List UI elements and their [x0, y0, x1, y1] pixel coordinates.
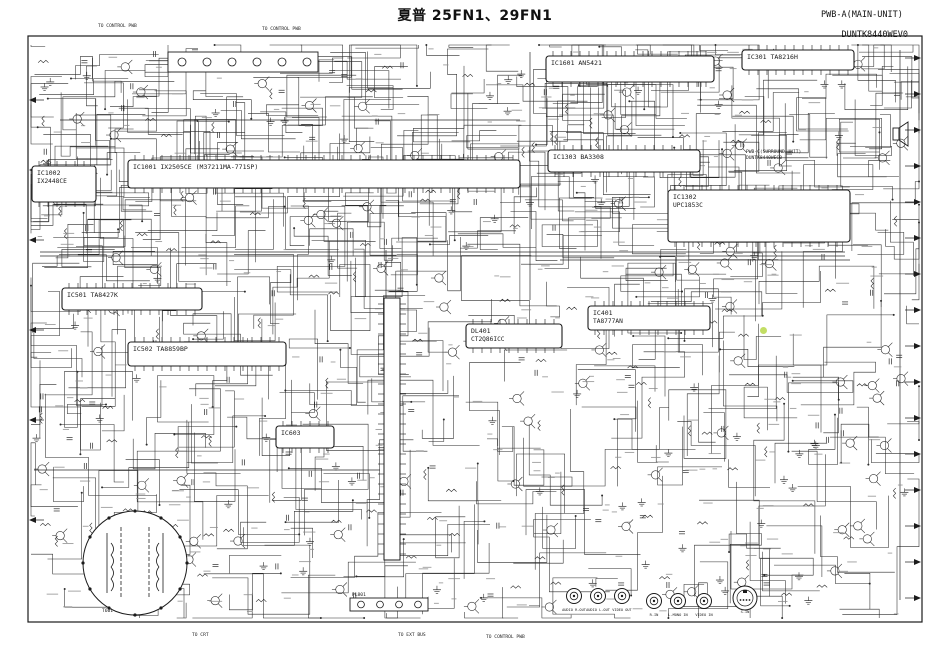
component-IC1002: IC1002IX2448CE — [32, 161, 96, 207]
highlight-mark — [760, 327, 767, 334]
ic-components: IC1001 IX2505CE (M37211MA-771SP)IC1002IX… — [32, 45, 854, 453]
component-IC1303: IC1303 BA3308 — [548, 145, 700, 177]
svg-text:UPC1853C: UPC1853C — [673, 202, 703, 209]
note-label: T601 — [102, 608, 113, 614]
svg-text:R-IN: R-IN — [650, 613, 659, 617]
component-IC401: IC401TA8777AN — [588, 301, 710, 335]
svg-text:IX2448CE: IX2448CE — [37, 178, 67, 185]
board-label: PWB-A(MAIN-UNIT) DUNTK8440WEV0 — [821, 10, 908, 51]
component-IC1302: IC1302UPC1853C — [668, 185, 850, 247]
component-DL401: DL401CT2Q86ICC — [466, 319, 562, 353]
svg-text:IC301 TA8216H: IC301 TA8216H — [747, 53, 798, 61]
component-IC1001: IC1001 IX2505CE (M37211MA-771SP) — [128, 155, 520, 193]
note-label: TO EXT BUS — [398, 632, 426, 638]
component-IC1601: IC1601 AN5421 — [546, 51, 714, 87]
svg-text:IC1601 AN5421: IC1601 AN5421 — [551, 59, 602, 67]
svg-text:IC501 TA8427K: IC501 TA8427K — [67, 291, 118, 299]
note-label: TO CRT — [192, 632, 209, 638]
board-label-line2: DUNTK8440WEV0 — [841, 30, 908, 40]
page-title: 夏普 25FN1、29FN1 — [0, 5, 950, 25]
component-IC502: IC502 TA8859BP — [128, 337, 286, 371]
svg-text:AUDIO R-OUT: AUDIO R-OUT — [562, 608, 587, 612]
svg-text:IC1001 IX2505CE (M37211MA-771: IC1001 IX2505CE (M37211MA-771SP) — [133, 163, 258, 171]
component-IC603: IC603 — [276, 421, 334, 453]
svg-text:IC1303 BA3308: IC1303 BA3308 — [553, 153, 604, 161]
top-connector — [168, 52, 318, 72]
schematic-canvas: IC1001 IX2505CE (M37211MA-771SP)IC1002IX… — [0, 0, 950, 645]
jack-video-in: VIDEO IN — [695, 594, 712, 618]
svg-text:IC502 TA8859BP: IC502 TA8859BP — [133, 345, 188, 353]
jack-r-in: R-IN — [647, 594, 662, 618]
flyback-transformer — [81, 509, 188, 616]
svg-text:AUDIO L-OUT: AUDIO L-OUT — [586, 608, 611, 612]
svg-text:IC401: IC401 — [593, 309, 613, 317]
svg-text:DL401: DL401 — [471, 327, 491, 335]
note-label: PL801 — [352, 592, 366, 598]
svg-text:IC1002: IC1002 — [37, 169, 61, 177]
svg-text:CT2Q86ICC: CT2Q86ICC — [471, 336, 505, 343]
note-label: DUNTK8440WEC0 — [746, 155, 782, 161]
jack-video-out: VIDEO OUT — [612, 589, 632, 613]
component-IC501: IC501 TA8427K — [62, 283, 202, 315]
svg-text:VIDEO OUT: VIDEO OUT — [612, 608, 632, 612]
vertical-connector-strip — [378, 298, 406, 560]
note-label: TO CONTROL PWB — [262, 26, 301, 32]
svg-text:L-MONO IN: L-MONO IN — [668, 613, 687, 617]
svg-text:S-IN: S-IN — [741, 610, 750, 614]
svg-text:TA8777AN: TA8777AN — [593, 318, 623, 325]
jack-l-mono-in: L-MONO IN — [668, 594, 687, 618]
svg-text:IC603: IC603 — [281, 429, 301, 437]
jack-s-in: S-IN — [733, 586, 757, 614]
bottom-connector-pl801 — [350, 598, 428, 611]
board-label-line1: PWB-A(MAIN-UNIT) — [821, 10, 903, 20]
svg-text:VIDEO IN: VIDEO IN — [695, 613, 712, 617]
speaker-icon — [893, 122, 908, 146]
note-label: PWB-C(SURROUND-UNIT) — [746, 149, 801, 155]
schematic-sheet: IC1001 IX2505CE (M37211MA-771SP)IC1002IX… — [0, 0, 950, 645]
svg-text:IC1302: IC1302 — [673, 193, 697, 201]
note-labels: TO CONTROL PWBTO CONTROL PWBPWB-C(SURROU… — [98, 23, 801, 640]
note-label: TO CONTROL PWB — [486, 634, 525, 640]
